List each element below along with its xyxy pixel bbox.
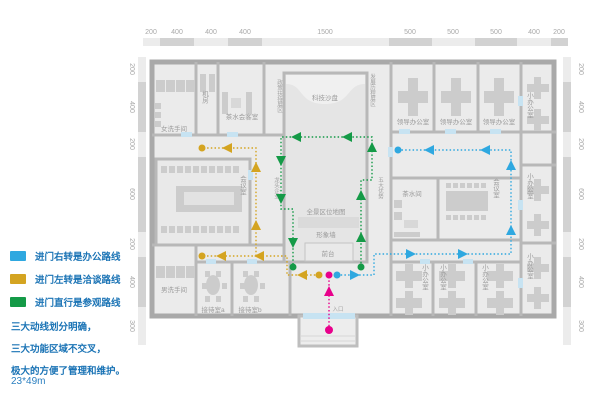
- route-legend: 进门右转是办公路线 进门左转是洽谈路线 进门直行是参观路线: [10, 251, 121, 320]
- legend-item-tour: 进门直行是参观路线: [10, 297, 121, 307]
- svg-text:400: 400: [577, 276, 584, 288]
- label-location-map: 全景区位地图: [307, 207, 346, 216]
- image-wall-shape: [298, 217, 359, 228]
- label-policy-wall: 政策扶持展区: [276, 78, 283, 113]
- label-front-desk: 前台: [322, 249, 335, 258]
- svg-text:300: 300: [128, 320, 135, 332]
- label-tea-reception: 茶水会客室: [226, 112, 259, 121]
- svg-text:200: 200: [128, 138, 135, 150]
- label-womens-restroom: 女洗手间: [161, 124, 187, 133]
- office-route-swatch: [10, 251, 26, 261]
- svg-text:200: 200: [128, 238, 135, 250]
- svg-text:400: 400: [239, 29, 251, 36]
- svg-text:600: 600: [128, 188, 135, 200]
- label-advantages: 五大优势: [377, 177, 384, 201]
- legend-item-office: 进门右转是办公路线: [10, 251, 121, 261]
- dimension-strip-top: 200 400 400 400 1500 500 500 500 400 200: [143, 29, 568, 46]
- legend-label-tour: 进门直行是参观路线: [35, 295, 121, 309]
- note-line-1: 三大动线划分明确，: [11, 317, 125, 339]
- legend-label-office: 进门右转是办公路线: [35, 249, 121, 263]
- svg-text:400: 400: [205, 29, 217, 36]
- legend-label-talk: 进门左转是洽谈路线: [35, 272, 121, 286]
- svg-text:400: 400: [577, 101, 584, 113]
- label-leader-office-3: 领导办公室: [483, 117, 516, 126]
- label-image-wall: 形象墙: [316, 230, 336, 239]
- svg-text:600: 600: [577, 188, 584, 200]
- svg-text:400: 400: [171, 29, 183, 36]
- svg-text:200: 200: [577, 63, 584, 75]
- svg-text:500: 500: [490, 29, 502, 36]
- note-line-2: 三大功能区域不交叉，: [11, 339, 125, 361]
- svg-text:400: 400: [128, 101, 135, 113]
- dimension-strip-right: 200 400 200 600 200 400 300: [563, 57, 584, 345]
- desk-leader-offices: [398, 78, 514, 116]
- svg-text:1500: 1500: [317, 29, 333, 36]
- label-mens-restroom: 男洗手间: [161, 285, 187, 294]
- svg-text:200: 200: [553, 29, 565, 36]
- talk-route-swatch: [10, 274, 26, 284]
- label-entrance: 入口: [332, 306, 343, 313]
- building-size: 23*49m: [11, 376, 45, 387]
- svg-text:500: 500: [404, 29, 416, 36]
- svg-text:200: 200: [577, 238, 584, 250]
- label-reception-a: 接待室a: [201, 305, 225, 314]
- svg-text:300: 300: [577, 320, 584, 332]
- svg-text:200: 200: [128, 63, 135, 75]
- label-tech-sandbox: 科技沙盘: [312, 93, 339, 102]
- label-tea-room: 茶水间: [402, 189, 422, 198]
- svg-text:200: 200: [145, 29, 157, 36]
- summary-notes: 三大动线划分明确， 三大功能区域不交叉， 极大的方便了管理和维护。: [11, 317, 125, 383]
- svg-text:500: 500: [447, 29, 459, 36]
- svg-text:400: 400: [128, 276, 135, 288]
- floorplan-infographic: 200 400 400 400 1500 500 500 500 400 200…: [0, 0, 600, 400]
- label-leader-office-1: 领导办公室: [397, 117, 430, 126]
- label-history-wall: 发展历程展区: [369, 72, 376, 107]
- dimension-strip-left: 200 400 200 600 200 400 300: [128, 57, 146, 345]
- tour-route-swatch: [10, 297, 26, 307]
- svg-text:200: 200: [577, 138, 584, 150]
- label-leader-office-2: 领导办公室: [440, 117, 473, 126]
- legend-item-talk: 进门左转是洽谈路线: [10, 274, 121, 284]
- svg-text:400: 400: [528, 29, 540, 36]
- label-reception-b: 接待室b: [238, 305, 262, 314]
